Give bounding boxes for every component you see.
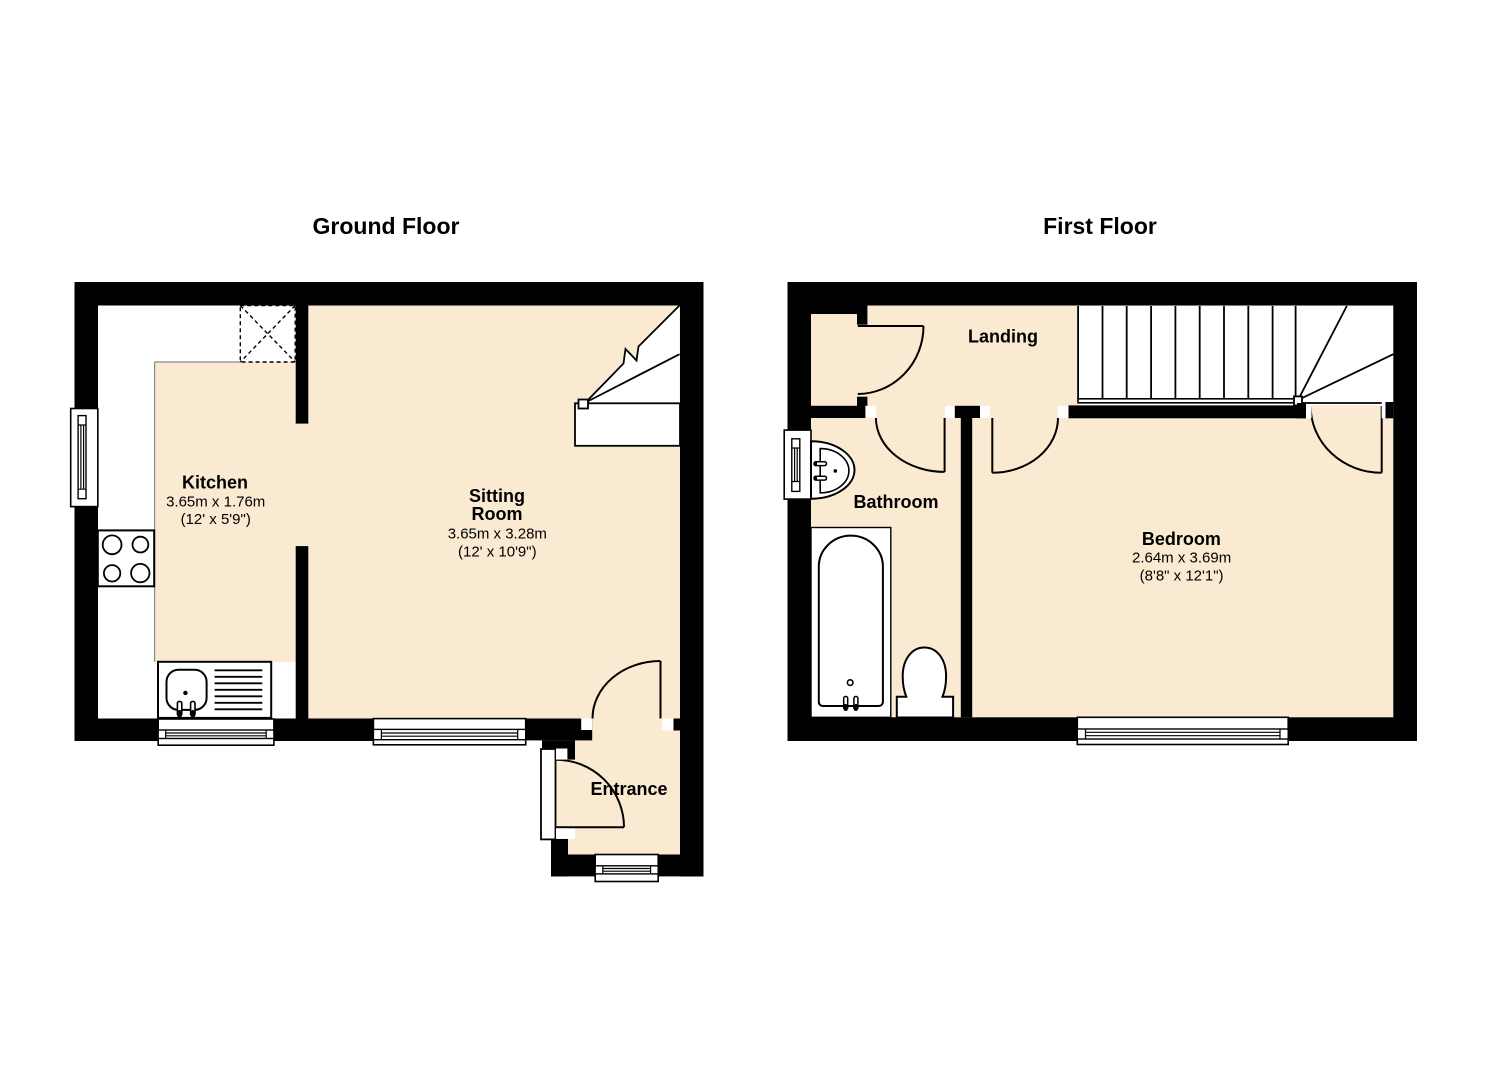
svg-text:First Floor: First Floor: [1043, 213, 1157, 239]
svg-text:Bedroom: Bedroom: [1142, 529, 1221, 549]
svg-text:Landing: Landing: [968, 326, 1038, 346]
svg-text:(12' x 10'9"): (12' x 10'9"): [458, 543, 537, 560]
svg-text:3.65m x 1.76m: 3.65m x 1.76m: [166, 493, 265, 510]
svg-text:Ground Floor: Ground Floor: [313, 213, 460, 239]
svg-text:Room: Room: [472, 504, 523, 524]
svg-text:(12' x 5'9"): (12' x 5'9"): [181, 511, 251, 528]
svg-text:2.64m x 3.69m: 2.64m x 3.69m: [1132, 550, 1231, 567]
svg-text:Sitting: Sitting: [469, 486, 525, 506]
svg-text:Entrance: Entrance: [590, 779, 667, 799]
svg-text:3.65m x 3.28m: 3.65m x 3.28m: [448, 526, 547, 543]
svg-text:Bathroom: Bathroom: [854, 492, 939, 512]
svg-text:Kitchen: Kitchen: [182, 473, 248, 493]
svg-text:(8'8" x 12'1"): (8'8" x 12'1"): [1140, 568, 1224, 585]
